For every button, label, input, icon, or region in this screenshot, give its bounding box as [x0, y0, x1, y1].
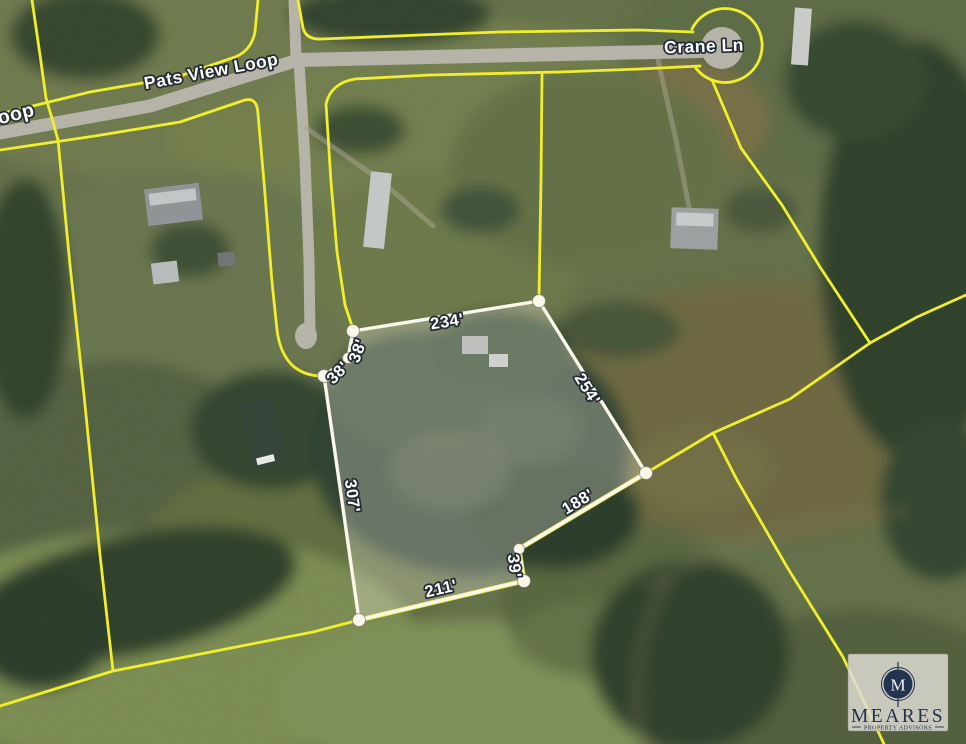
building-roof — [676, 212, 713, 226]
dimension-label-39: 39' — [504, 553, 525, 579]
building — [151, 260, 179, 284]
parcel-vertex — [353, 614, 366, 627]
map-canvas: 234' 254' 188' 39' 211' 307' 38' 38' Pat… — [0, 0, 966, 744]
logo-tagline: PROPERTY ADVISORS — [864, 726, 932, 732]
aerial-map: 234' 254' 188' 39' 211' 307' 38' 38' Pat… — [0, 0, 966, 744]
parcel-vertex — [533, 295, 546, 308]
logo-monogram: M — [890, 676, 905, 695]
road-north-stub — [294, 0, 296, 58]
building — [217, 251, 236, 267]
logo-brand-text: MEARES — [851, 706, 945, 727]
road-crane-ln — [298, 51, 700, 60]
road-label-crane-ln: Crane Ln — [664, 35, 745, 58]
parcel-vertex — [347, 325, 360, 338]
south-spur-cul-de-sac — [295, 323, 317, 349]
watermark-logo: M MEARES PROPERTY ADVISORS — [848, 654, 948, 732]
parcel-vertex — [640, 467, 653, 480]
